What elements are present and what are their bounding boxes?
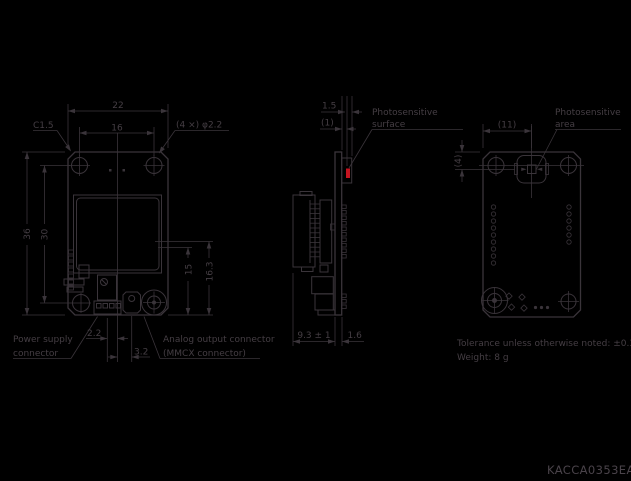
dim-holes-label: (4 ×) φ2.2 [176, 121, 222, 131]
dim-hole-spacing-label: 16 [111, 124, 123, 134]
dimensional-outline-drawing: 22 16 C1.5 (4 ×) φ2.2 36 30 15 16.3 2.2 … [0, 0, 631, 481]
dim-height-label: 36 [23, 228, 33, 240]
photosensitive-area-label-line1: Photosensitive [555, 108, 621, 118]
mmcx-connector-front [142, 290, 167, 315]
dim-4-label: (4) [454, 155, 464, 168]
drawing-code: KACCA0353EA [547, 463, 631, 477]
dim-chamfer-label: C1.5 [33, 121, 54, 131]
dim-1-6-label: 1.6 [348, 331, 363, 341]
dim-1-label: (1) [321, 119, 334, 129]
photosensitive-surface-label-line1: Photosensitive [372, 108, 438, 118]
power-connector-label-line2: connector [13, 349, 58, 359]
dim-16-3-label: 16.3 [206, 261, 216, 281]
photosensitive-surface-label-line2: surface [372, 120, 406, 130]
dim-width-label: 22 [112, 101, 123, 111]
dim-hole-v-spacing-label: 30 [41, 229, 51, 241]
analog-connector-label-line1: Analog output connector [163, 335, 275, 345]
technical-drawing-page: 22 16 C1.5 (4 ×) φ2.2 36 30 15 16.3 2.2 … [0, 0, 631, 481]
dim-2-2-label: 2.2 [87, 329, 101, 339]
dim-11-label: (11) [498, 121, 516, 131]
tolerance-note: Tolerance unless otherwise noted: ±0.3 [456, 339, 631, 349]
dim-3-2-label: 3.2 [134, 348, 148, 358]
fiducial-dot [123, 169, 126, 172]
dim-9-3-label: 9.3 ± 1 [297, 331, 330, 341]
dim-15-label: 15 [185, 264, 195, 275]
dim-1-5-label: 1.5 [322, 102, 336, 112]
power-connector-label-line1: Power supply [13, 335, 73, 345]
fiducial-dot [109, 169, 112, 172]
photosensitive-surface-mark [346, 169, 350, 179]
analog-connector-label-line2: (MMCX connector) [163, 349, 246, 359]
photosensitive-area-label-line2: area [555, 120, 575, 130]
weight-note: Weight: 8 g [457, 353, 509, 363]
